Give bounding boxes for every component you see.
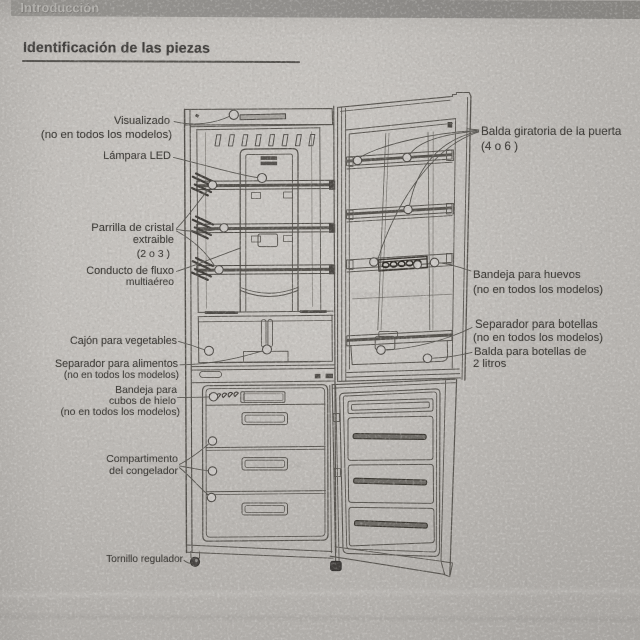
svg-text:aoеnq: aoеnq: [279, 283, 310, 295]
svg-text:nrorеqockеn: nrorеqockеn: [352, 289, 424, 304]
svg-text:иоетамин: иоетамин: [253, 459, 302, 471]
